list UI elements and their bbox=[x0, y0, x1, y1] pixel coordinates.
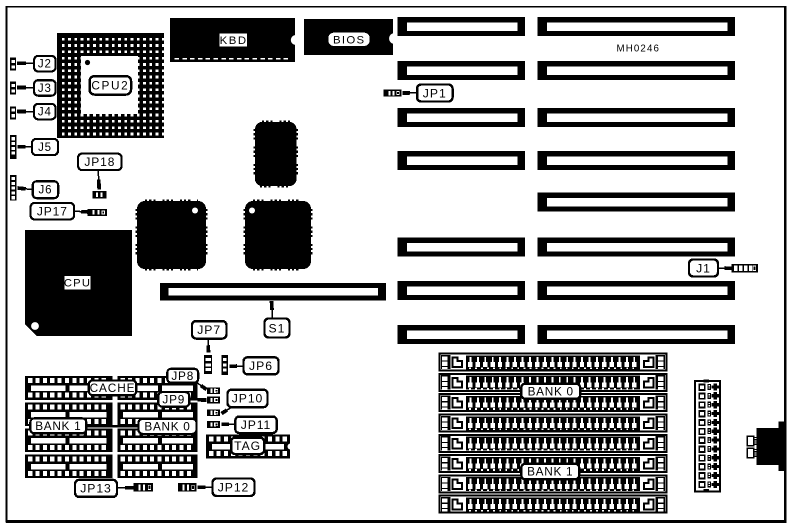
svg-text:JP10: JP10 bbox=[232, 392, 263, 406]
svg-text:JP12: JP12 bbox=[218, 480, 249, 494]
svg-text:BANK 0: BANK 0 bbox=[528, 384, 574, 398]
svg-text:TAG: TAG bbox=[234, 439, 261, 453]
svg-text:JP6: JP6 bbox=[249, 359, 273, 373]
svg-text:JP9: JP9 bbox=[162, 393, 185, 407]
svg-text:JP1: JP1 bbox=[423, 86, 447, 100]
svg-text:J1: J1 bbox=[696, 261, 711, 275]
svg-text:J3: J3 bbox=[38, 83, 52, 95]
svg-text:S1: S1 bbox=[269, 321, 286, 335]
svg-text:J5: J5 bbox=[38, 142, 52, 154]
svg-text:JP17: JP17 bbox=[37, 204, 68, 218]
svg-text:BANK 1: BANK 1 bbox=[527, 465, 573, 479]
svg-text:KBD: KBD bbox=[220, 35, 248, 47]
svg-text:CPU2: CPU2 bbox=[91, 78, 129, 92]
svg-text:JP11: JP11 bbox=[241, 418, 271, 432]
svg-text:BANK 0: BANK 0 bbox=[144, 420, 190, 434]
svg-text:CACHE: CACHE bbox=[90, 381, 136, 395]
svg-text:JP13: JP13 bbox=[80, 482, 111, 496]
svg-text:J6: J6 bbox=[39, 185, 53, 197]
svg-text:JP7: JP7 bbox=[197, 323, 221, 337]
svg-text:BIOS: BIOS bbox=[333, 35, 365, 47]
svg-text:JP18: JP18 bbox=[84, 155, 115, 169]
svg-text:J4: J4 bbox=[38, 107, 52, 119]
svg-text:J2: J2 bbox=[38, 59, 52, 71]
svg-text:BANK 1: BANK 1 bbox=[35, 419, 81, 433]
svg-text:CPU: CPU bbox=[64, 278, 91, 290]
svg-text:JP8: JP8 bbox=[171, 369, 194, 383]
svg-text:MH0246: MH0246 bbox=[617, 43, 661, 54]
